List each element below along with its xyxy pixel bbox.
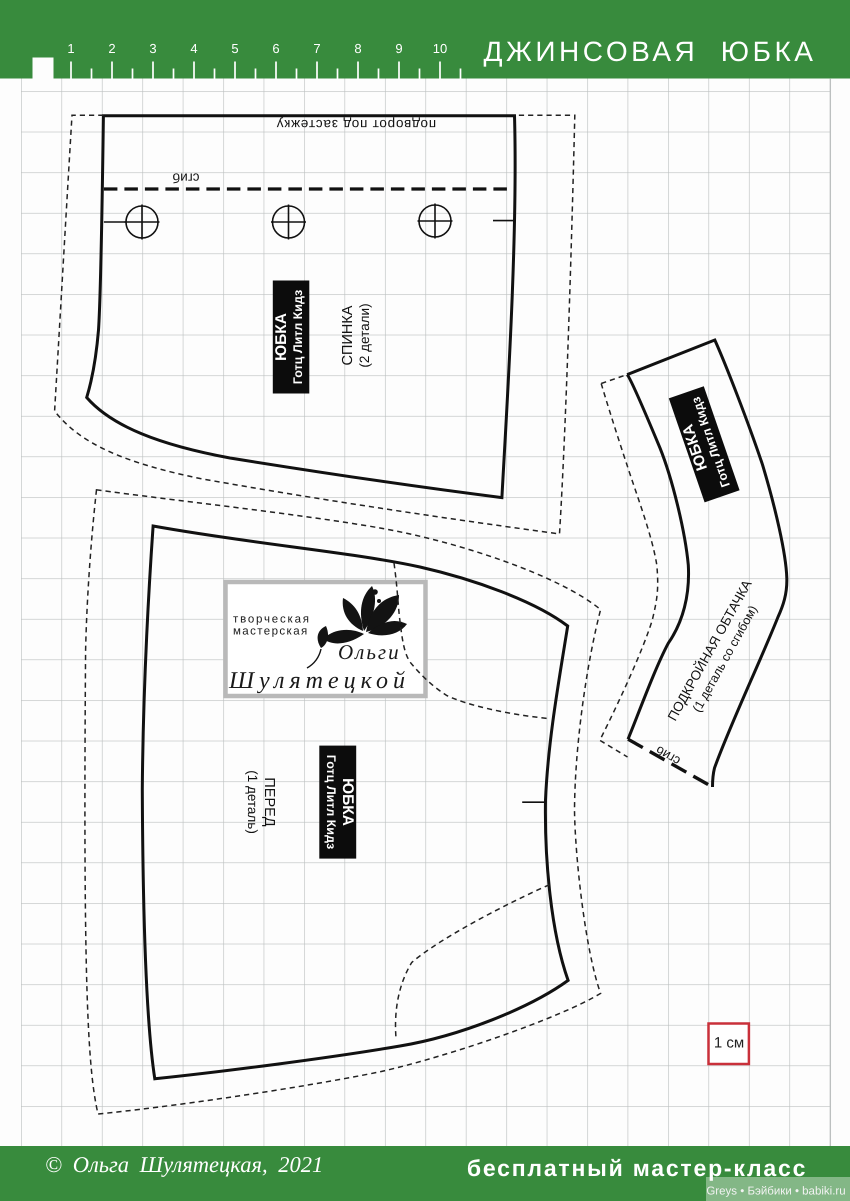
- svg-text:мастерская: мастерская: [233, 626, 309, 638]
- svg-text:6: 6: [272, 41, 279, 56]
- svg-text:© Ольга Шулятецкая, 2021: © Ольга Шулятецкая, 2021: [45, 1152, 323, 1177]
- svg-text:Готц Литл Кидз: Готц Литл Кидз: [324, 755, 338, 850]
- svg-text:СПИНКА: СПИНКА: [340, 305, 356, 365]
- svg-text:9: 9: [395, 41, 402, 56]
- svg-text:1 см: 1 см: [714, 1035, 744, 1052]
- svg-text:творческая: творческая: [233, 614, 311, 626]
- svg-text:Ольги: Ольги: [338, 640, 401, 664]
- svg-text:1: 1: [67, 41, 74, 56]
- svg-text:Готц Литл Кидз: Готц Литл Кидз: [291, 290, 305, 385]
- svg-text:2: 2: [108, 41, 115, 56]
- svg-text:ДЖИНСОВАЯ ЮБКА: ДЖИНСОВАЯ ЮБКА: [484, 36, 817, 67]
- svg-text:(1 деталь): (1 деталь): [245, 770, 260, 834]
- svg-text:5: 5: [231, 41, 238, 56]
- svg-text:ПЕРЕД: ПЕРЕД: [261, 777, 277, 826]
- svg-text:подворот под застежку: подворот под застежку: [276, 117, 436, 132]
- svg-text:10: 10: [433, 41, 447, 56]
- svg-text:3: 3: [149, 41, 156, 56]
- svg-text:(2 детали): (2 детали): [357, 303, 372, 367]
- svg-text:7: 7: [313, 41, 320, 56]
- svg-text:ЮБКА: ЮБКА: [339, 778, 356, 826]
- svg-text:Шулятецкой: Шулятецкой: [228, 668, 410, 694]
- svg-text:ЮБКА: ЮБКА: [273, 313, 290, 361]
- svg-text:8: 8: [354, 41, 361, 56]
- svg-text:4: 4: [190, 41, 197, 56]
- svg-text:Greys • Бэйбики • babiki.ru: Greys • Бэйбики • babiki.ru: [706, 1186, 845, 1198]
- svg-text:сгиб: сгиб: [172, 171, 199, 186]
